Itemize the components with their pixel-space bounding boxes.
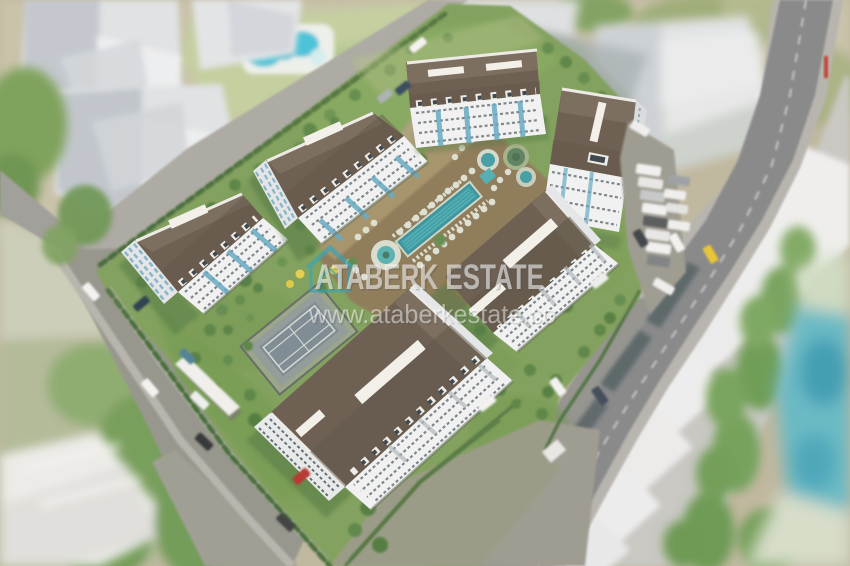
svg-text:www.ataberkestate.co: www.ataberkestate.co (308, 299, 556, 329)
svg-text:ATABERK ESTATE: ATABERK ESTATE (315, 258, 544, 297)
